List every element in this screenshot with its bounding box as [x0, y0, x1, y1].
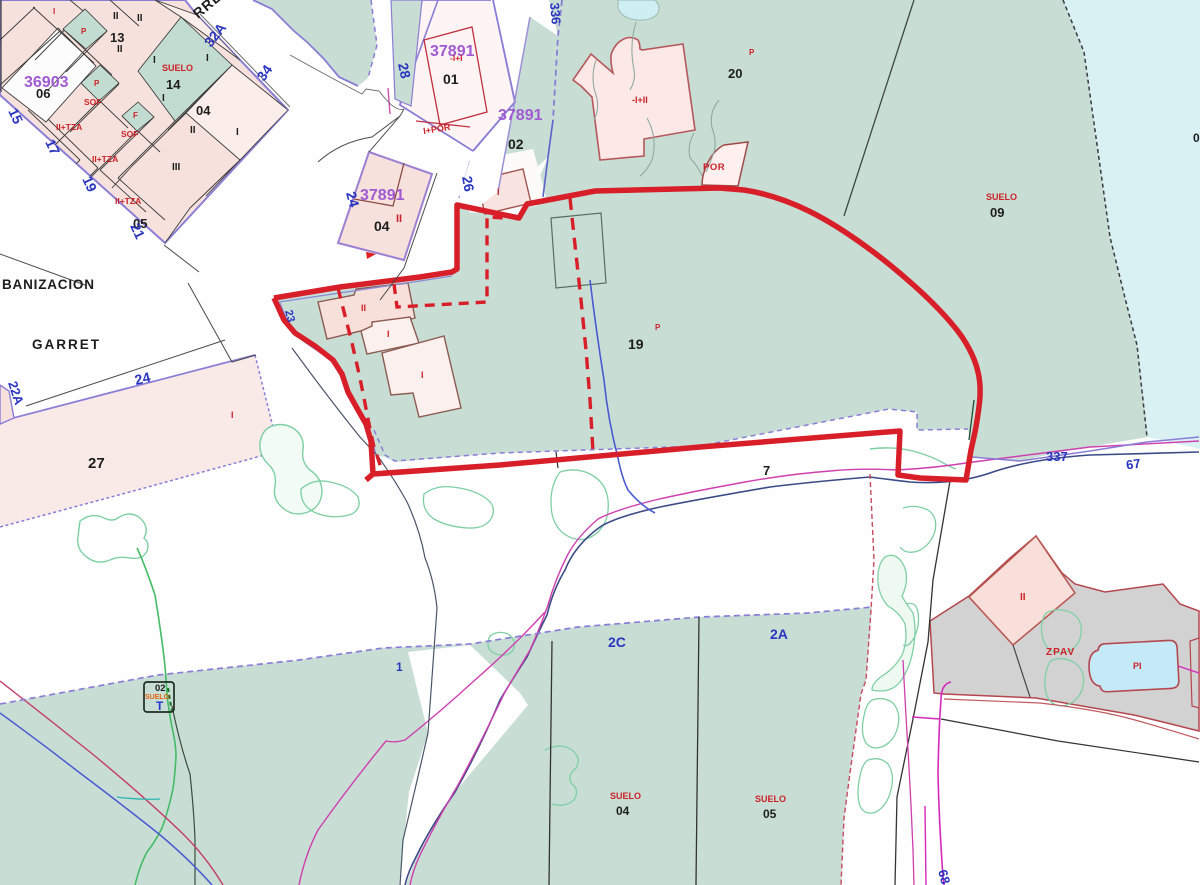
svg-text:II+TZA: II+TZA: [115, 196, 141, 206]
svg-text:II+TZA: II+TZA: [56, 122, 82, 132]
svg-text:67: 67: [1125, 456, 1141, 473]
svg-text:P: P: [94, 79, 100, 88]
svg-text:T: T: [156, 699, 164, 713]
svg-text:I: I: [53, 7, 55, 16]
svg-text:0: 0: [1193, 131, 1200, 145]
svg-text:II: II: [117, 44, 123, 55]
svg-text:04: 04: [616, 804, 630, 818]
svg-text:II: II: [137, 13, 143, 24]
svg-text:I: I: [162, 93, 165, 104]
svg-text:01: 01: [443, 71, 459, 87]
svg-text:2A: 2A: [770, 626, 788, 642]
svg-text:14: 14: [166, 77, 181, 92]
svg-text:I: I: [497, 187, 500, 197]
svg-text:1: 1: [396, 660, 403, 674]
svg-text:336: 336: [547, 2, 564, 25]
svg-text:13: 13: [110, 30, 124, 45]
svg-text:I: I: [153, 55, 156, 66]
svg-text:SOF: SOF: [84, 97, 101, 107]
svg-text:SUELO: SUELO: [986, 192, 1017, 202]
svg-text:37891: 37891: [360, 187, 405, 204]
svg-text:02: 02: [155, 683, 166, 694]
svg-text:I: I: [387, 329, 390, 339]
svg-text:SUELO: SUELO: [610, 791, 641, 801]
svg-text:2C: 2C: [608, 634, 626, 650]
svg-text:POR: POR: [703, 162, 725, 173]
svg-text:37891: 37891: [498, 107, 543, 124]
svg-text:P: P: [655, 323, 661, 332]
svg-text:F: F: [133, 111, 138, 120]
svg-text:09: 09: [990, 205, 1004, 220]
svg-text:-I+II: -I+II: [632, 95, 648, 105]
svg-text:P: P: [81, 27, 87, 36]
svg-text:P: P: [749, 48, 755, 57]
svg-text:II: II: [190, 125, 196, 136]
svg-text:I: I: [206, 53, 209, 64]
svg-text:I: I: [231, 410, 234, 420]
svg-text:SUELO: SUELO: [162, 63, 193, 73]
svg-text:06: 06: [36, 86, 50, 101]
svg-text:05: 05: [763, 807, 777, 821]
svg-text:19: 19: [628, 336, 644, 352]
svg-text:26: 26: [459, 175, 477, 193]
svg-text:BANIZACION: BANIZACION: [2, 277, 95, 292]
svg-text:I: I: [421, 370, 424, 380]
svg-text:II+TZA: II+TZA: [92, 154, 118, 164]
svg-text:SOF: SOF: [121, 129, 138, 139]
svg-text:SUELO: SUELO: [755, 794, 786, 804]
svg-text:I: I: [236, 127, 239, 138]
svg-text:III: III: [172, 162, 181, 173]
svg-text:04: 04: [196, 103, 211, 118]
svg-text:27: 27: [88, 455, 105, 472]
svg-text:02: 02: [508, 136, 524, 152]
svg-text:04: 04: [374, 218, 390, 234]
svg-text:ZPAV: ZPAV: [1046, 647, 1075, 658]
svg-text:II: II: [1020, 592, 1026, 603]
svg-text:7: 7: [763, 463, 770, 478]
svg-text:337: 337: [1046, 449, 1068, 464]
svg-text:GARRET: GARRET: [32, 337, 101, 352]
svg-text:II: II: [361, 303, 366, 313]
svg-text:-I+I: -I+I: [450, 53, 463, 63]
svg-text:PI: PI: [1133, 661, 1142, 671]
svg-text:II: II: [396, 213, 402, 225]
svg-text:20: 20: [728, 66, 742, 81]
svg-text:II: II: [113, 11, 119, 22]
